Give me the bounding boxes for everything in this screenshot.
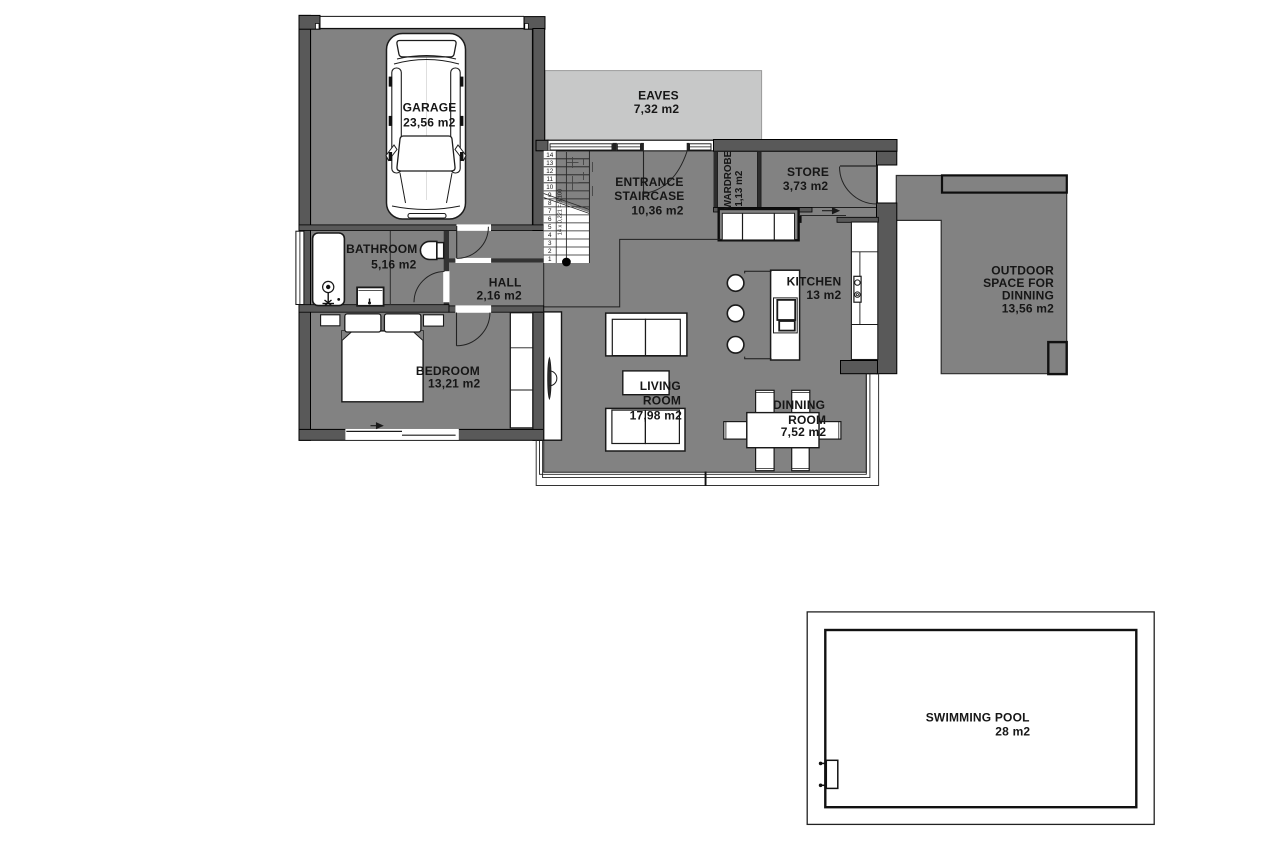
svg-text:7,32 m2: 7,32 m2: [634, 102, 680, 116]
svg-text:12: 12: [546, 168, 554, 175]
svg-text:DINNING: DINNING: [773, 398, 825, 412]
svg-text:11: 11: [547, 176, 554, 183]
svg-text:ENTRANCE: ENTRANCE: [615, 175, 683, 189]
svg-text:ROOM: ROOM: [643, 394, 681, 408]
svg-text:4: 4: [548, 232, 552, 239]
svg-text:GARAGE: GARAGE: [403, 101, 457, 115]
svg-text:5: 5: [548, 224, 552, 231]
svg-text:3: 3: [548, 240, 552, 247]
svg-text:13: 13: [546, 160, 554, 167]
svg-text:LIVING: LIVING: [640, 379, 681, 393]
svg-text:BATHROOM: BATHROOM: [346, 242, 417, 256]
svg-text:8: 8: [548, 200, 552, 207]
svg-text:KITCHEN: KITCHEN: [787, 275, 842, 289]
svg-text:13,21 m2: 13,21 m2: [428, 377, 480, 391]
svg-text:13 m2: 13 m2: [806, 288, 841, 302]
svg-text:6: 6: [548, 216, 552, 223]
svg-text:EAVES: EAVES: [638, 89, 679, 103]
svg-text:17,98 m2: 17,98 m2: [630, 409, 682, 423]
svg-text:2,16 m2: 2,16 m2: [476, 289, 522, 303]
svg-text:28 m2: 28 m2: [995, 725, 1030, 739]
svg-text:5,16 m2: 5,16 m2: [371, 257, 417, 271]
svg-text:7,52 m2: 7,52 m2: [781, 425, 827, 439]
svg-text:7: 7: [548, 208, 552, 215]
svg-text:14: 14: [546, 152, 554, 159]
svg-text:HALL: HALL: [489, 276, 522, 290]
svg-text:23,56 m2: 23,56 m2: [403, 115, 455, 129]
svg-text:1,13 m2: 1,13 m2: [734, 170, 745, 207]
svg-text:SWIMMING POOL: SWIMMING POOL: [926, 711, 1030, 725]
svg-text:WARDROBE: WARDROBE: [723, 150, 734, 209]
svg-text:2: 2: [548, 248, 552, 255]
svg-text:STORE: STORE: [787, 165, 829, 179]
svg-text:3,73 m2: 3,73 m2: [783, 179, 829, 193]
svg-text:1: 1: [548, 256, 552, 263]
svg-text:STAIRCASE: STAIRCASE: [614, 189, 684, 203]
svg-text:10: 10: [546, 184, 554, 191]
svg-text:10,36 m2: 10,36 m2: [631, 204, 683, 218]
svg-text:14 x 0,221 = 3,100: 14 x 0,221 = 3,100: [558, 189, 564, 236]
svg-text:13,56 m2: 13,56 m2: [1002, 301, 1054, 315]
